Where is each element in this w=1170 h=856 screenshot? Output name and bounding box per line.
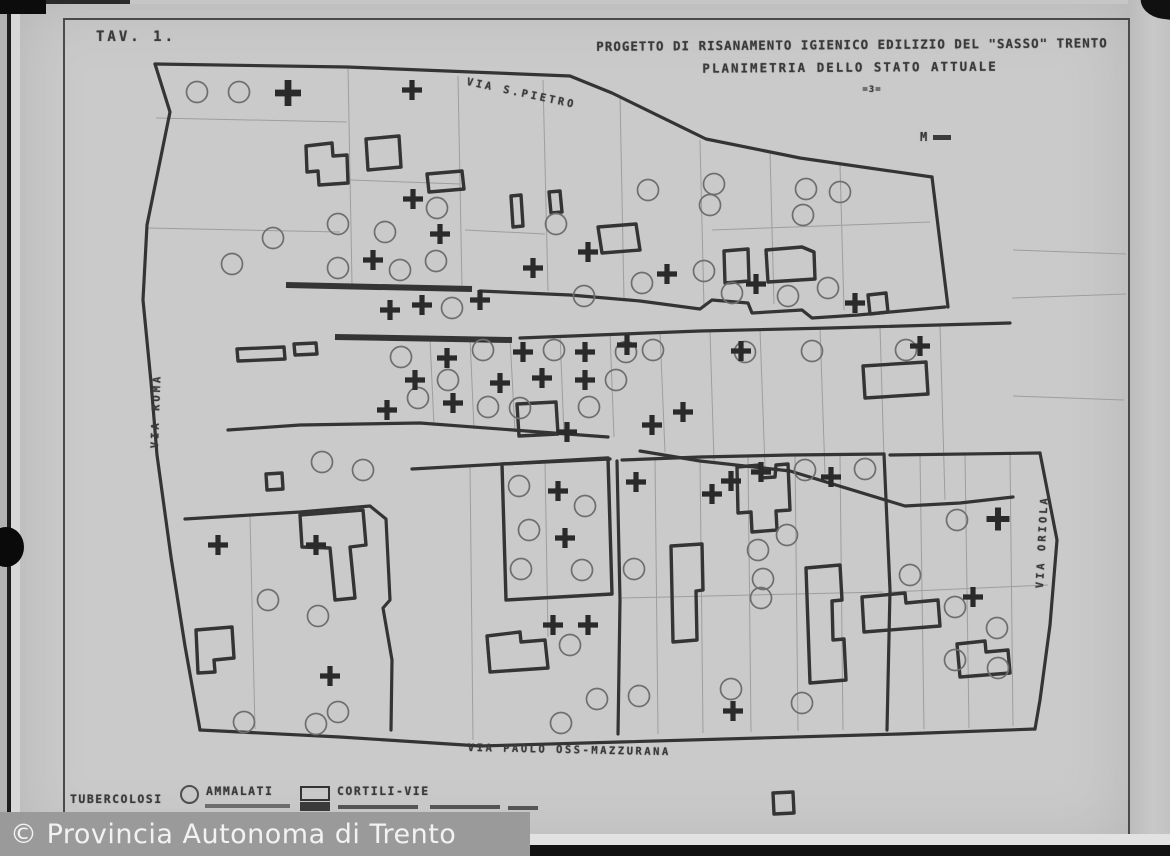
tubercolosi-circle-mark [258, 590, 279, 611]
tubercolosi-circle-mark [510, 398, 531, 419]
tubercolosi-circle-mark [229, 82, 250, 103]
tubercolosi-circle-mark [551, 713, 572, 734]
parcel-line [543, 80, 548, 291]
tubercolosi-circle-mark [478, 397, 499, 418]
courtyard-building-outline [863, 362, 928, 398]
city-plan-drawing [0, 0, 1170, 856]
parcel-line [1013, 396, 1124, 400]
tubercolosi-circle-mark [945, 650, 966, 671]
parcel-line [1012, 294, 1126, 298]
tubercolosi-circle-mark [579, 397, 600, 418]
ammalato-cross-mark [380, 300, 400, 320]
tubercolosi-circle-mark [748, 540, 769, 561]
tubercolosi-circle-mark [751, 588, 772, 609]
tubercolosi-circle-mark [328, 258, 349, 279]
ammalato-cross-mark [575, 370, 595, 390]
ammalato-cross-mark [702, 484, 722, 504]
ammalato-cross-mark [657, 264, 677, 284]
photo-left-margin [0, 0, 7, 856]
tubercolosi-circle-mark [390, 260, 411, 281]
tubercolosi-circle-mark [778, 286, 799, 307]
ammalato-cross-mark [642, 415, 662, 435]
courtyard-building-outline [366, 136, 401, 170]
tubercolosi-circle-mark [802, 341, 823, 362]
ammalato-cross-mark [548, 481, 568, 501]
north-mark-letter: M [920, 130, 927, 144]
ammalato-cross-mark [626, 472, 646, 492]
parcel-line [795, 455, 798, 731]
tubercolosi-circle-mark [572, 560, 593, 581]
ammalato-cross-mark [437, 348, 457, 368]
tubercolosi-circle-mark [509, 476, 530, 497]
tubercolosi-circle-mark [704, 174, 725, 195]
street-outline [617, 461, 620, 734]
courtyard-building-outline [300, 510, 366, 600]
tubercolosi-circle-mark [792, 693, 813, 714]
tubercolosi-circle-mark [793, 205, 814, 226]
ammalato-cross-mark [555, 528, 575, 548]
parcel-line [545, 461, 548, 637]
ammalato-cross-mark [430, 224, 450, 244]
ammalato-cross-mark [731, 341, 751, 361]
ammalato-cross-mark [402, 80, 422, 100]
courtyard-building-outline [487, 632, 548, 672]
ammalato-cross-mark [275, 80, 301, 106]
street-outline [932, 177, 948, 307]
ammalato-cross-mark [987, 508, 1010, 531]
street-bar [286, 285, 472, 289]
tubercolosi-circle-mark [442, 298, 463, 319]
legend-rect-icon [300, 786, 330, 801]
tubercolosi-circle-mark [519, 520, 540, 541]
tubercolosi-circle-mark [987, 618, 1008, 639]
courtyard-building-outline [266, 473, 283, 490]
ammalato-cross-mark [377, 400, 397, 420]
courtyard-building-outline [549, 191, 562, 213]
ammalato-cross-mark [578, 242, 598, 262]
ammalato-cross-mark [470, 290, 490, 310]
legend-row2-fragment [205, 804, 290, 808]
archival-photo-canvas: TAV. 1. PROGETTO DI RISANAMENTO IGIENICO… [0, 0, 1170, 856]
tubercolosi-circle-mark [947, 510, 968, 531]
ammalato-cross-mark [403, 189, 423, 209]
ammalato-cross-mark [543, 615, 563, 635]
legend-label-cortili-vie: CORTILI-VIE [337, 784, 430, 798]
courtyard-building-outline [511, 195, 523, 227]
courtyard-building-outline [196, 627, 234, 673]
tubercolosi-circle-mark [624, 559, 645, 580]
ammalato-cross-mark [910, 336, 930, 356]
parcel-line [965, 454, 969, 728]
ammalato-cross-mark [523, 258, 543, 278]
legend-row2-fragment [508, 806, 538, 810]
tubercolosi-circle-mark [306, 714, 327, 735]
tubercolosi-circle-mark [391, 347, 412, 368]
legend-label-tubercolosi: TUBERCOLOSI [70, 792, 163, 806]
ammalato-cross-mark [513, 342, 533, 362]
scale-note: =3= [842, 85, 902, 95]
tubercolosi-circle-mark [900, 565, 921, 586]
tubercolosi-circle-mark [896, 340, 917, 361]
tubercolosi-circle-mark [511, 559, 532, 580]
tubercolosi-circle-mark [546, 214, 567, 235]
ammalato-cross-mark [963, 587, 983, 607]
courtyard-building-outline [306, 143, 348, 185]
tubercolosi-circle-mark [777, 525, 798, 546]
tubercolosi-circle-mark [544, 340, 565, 361]
courtyard-building-outline [237, 347, 285, 361]
parcel-line [700, 140, 704, 308]
tubercolosi-circle-mark [473, 340, 494, 361]
courtyard-building-outline [868, 293, 888, 314]
tubercolosi-circle-mark [855, 459, 876, 480]
parcel-line [560, 335, 564, 434]
parcel-line [840, 165, 844, 310]
tubercolosi-circle-mark [638, 180, 659, 201]
tubercolosi-circle-mark [945, 597, 966, 618]
street-outline [884, 454, 890, 730]
parcel-line [920, 455, 924, 729]
tubercolosi-circles-layer [187, 82, 1009, 735]
street-outline [890, 453, 1040, 455]
parcel-line [1013, 250, 1126, 254]
legend-label-ammalati: AMMALATI [206, 784, 273, 798]
parcel-line [430, 339, 434, 426]
tubercolosi-circle-mark [632, 273, 653, 294]
parcel-line [610, 333, 614, 437]
tubercolosi-circle-mark [830, 182, 851, 203]
ammalato-cross-mark [723, 701, 743, 721]
tubercolosi-circle-mark [606, 370, 627, 391]
ammalato-cross-mark [320, 666, 340, 686]
tubercolosi-circle-mark [308, 606, 329, 627]
parcel-line [712, 222, 930, 230]
tubercolosi-circle-mark [427, 198, 448, 219]
tubercolosi-circle-mark [629, 686, 650, 707]
sheet-number: TAV. 1. [96, 29, 176, 45]
parcel-line [465, 230, 545, 234]
watermark-text: © Provincia Autonoma di Trento [10, 819, 456, 850]
tubercolosi-circle-mark [375, 222, 396, 243]
courtyard-building-outline [724, 249, 749, 283]
ammalato-cross-mark [363, 250, 383, 270]
parcel-line [148, 228, 340, 232]
parcel-line [620, 95, 624, 300]
courtyard-building-outline [294, 343, 317, 355]
parcel-line [760, 330, 765, 467]
courtyard-building-outline [427, 171, 464, 192]
legend-row2-fragment [338, 805, 418, 809]
north-mark: M [920, 130, 951, 144]
legend-row2-fragment [430, 805, 500, 809]
tubercolosi-circle-mark [222, 254, 243, 275]
tubercolosi-circle-mark [353, 460, 374, 481]
parcel-line [458, 76, 462, 289]
courtyard-building-outline [671, 544, 703, 642]
ammalato-cross-mark [405, 370, 425, 390]
tubercolosi-circle-mark [796, 179, 817, 200]
tubercolosi-circle-mark [721, 679, 742, 700]
ammalato-cross-mark [617, 335, 637, 355]
courtyard-building-outline [773, 792, 794, 814]
tubercolosi-circle-mark [426, 251, 447, 272]
parcel-line [470, 465, 473, 740]
tubercolosi-circle-mark [560, 635, 581, 656]
street-outline [520, 323, 1010, 338]
courtyard-building-outline [806, 565, 846, 683]
tubercolosi-circle-mark [694, 261, 715, 282]
parcel-line [890, 585, 1048, 592]
courtyard-building-outline [598, 224, 640, 253]
parcel-lines-layer [148, 67, 1126, 740]
ammalato-cross-mark [557, 422, 577, 442]
tubercolosi-circle-mark [312, 452, 333, 473]
photo-black-corner-top-left [0, 0, 46, 14]
north-mark-bar-icon [933, 135, 951, 140]
legend-row2-fragment [300, 802, 330, 811]
tubercolosi-circle-mark [234, 712, 255, 733]
parcel-line [156, 118, 347, 122]
ammalato-cross-mark [306, 535, 326, 555]
photo-bottom-black-strip [530, 845, 1170, 856]
tubercolosi-circle-mark [328, 214, 349, 235]
parcel-line [350, 180, 460, 184]
photo-edge-highlight [11, 0, 20, 856]
ammalato-cross-mark [578, 615, 598, 635]
tubercolosi-circle-mark [187, 82, 208, 103]
tubercolosi-circle-mark [700, 195, 721, 216]
photo-black-edge-top [46, 0, 130, 4]
ammalato-cross-mark [490, 373, 510, 393]
tubercolosi-circle-mark [328, 702, 349, 723]
ammalato-cross-mark [208, 535, 228, 555]
ammalato-cross-mark [443, 393, 463, 413]
ammalato-cross-mark [532, 368, 552, 388]
ammalato-cross-mark [673, 402, 693, 422]
parcel-line [1010, 454, 1013, 726]
parcel-line [655, 458, 658, 734]
parcel-line [700, 457, 703, 733]
watermark-bar: © Provincia Autonoma di Trento [0, 812, 530, 856]
parcel-line [710, 331, 714, 461]
legend-circle-icon [180, 785, 199, 804]
map-title-line2: PLANIMETRIA DELLO STATO ATTUALE [660, 58, 1040, 76]
tubercolosi-circle-mark [795, 460, 816, 481]
courtyard-building-outline [862, 593, 940, 632]
photo-bottom-white-strip [530, 834, 1170, 845]
parcel-line [940, 325, 945, 500]
tubercolosi-circle-mark [438, 370, 459, 391]
tubercolosi-circle-mark [818, 278, 839, 299]
parcel-line [250, 517, 255, 729]
tubercolosi-circle-mark [753, 569, 774, 590]
ammalato-cross-mark [412, 295, 432, 315]
tubercolosi-circle-mark [575, 496, 596, 517]
tubercolosi-circle-mark [587, 689, 608, 710]
ammalato-cross-mark [845, 293, 865, 313]
tubercolosi-circle-mark [408, 388, 429, 409]
ammalato-cross-mark [575, 342, 595, 362]
